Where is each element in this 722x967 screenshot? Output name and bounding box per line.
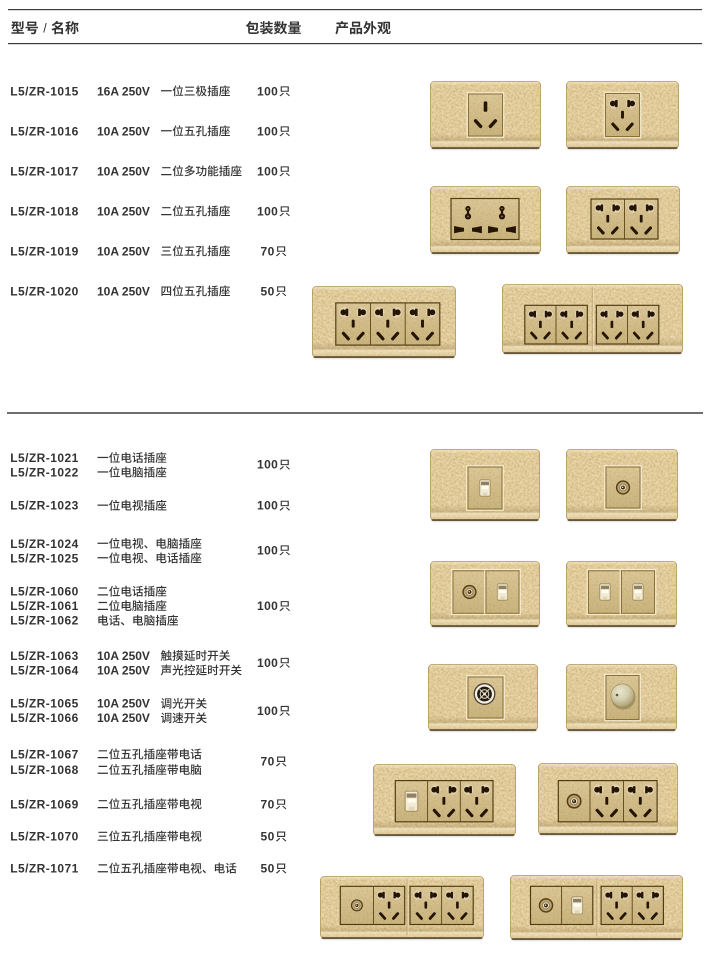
svg-text:L5/ZR-1060: L5/ZR-1060 xyxy=(10,585,79,599)
svg-text:L5/ZR-1025: L5/ZR-1025 xyxy=(10,551,79,565)
svg-text:L5/ZR-1020: L5/ZR-1020 xyxy=(10,284,79,298)
svg-text:L5/ZR-1064: L5/ZR-1064 xyxy=(10,663,79,677)
svg-text:100: 100 xyxy=(257,543,278,557)
svg-text:10A 250V: 10A 250V xyxy=(97,284,150,298)
svg-text:L5/ZR-1065: L5/ZR-1065 xyxy=(10,697,79,711)
svg-text:L5/ZR-1015: L5/ZR-1015 xyxy=(10,84,79,98)
svg-text:70: 70 xyxy=(261,797,275,811)
svg-text:10A 250V: 10A 250V xyxy=(97,649,150,663)
svg-text:100: 100 xyxy=(257,204,278,218)
svg-text:10A 250V: 10A 250V xyxy=(97,204,150,218)
svg-text:10A 250V: 10A 250V xyxy=(97,711,150,725)
svg-text:L5/ZR-1067: L5/ZR-1067 xyxy=(10,747,79,761)
svg-text:100: 100 xyxy=(257,704,278,718)
svg-text:L5/ZR-1068: L5/ZR-1068 xyxy=(10,763,79,777)
svg-text:10A 250V: 10A 250V xyxy=(97,697,150,711)
svg-text:10A 250V: 10A 250V xyxy=(97,164,150,178)
svg-text:100: 100 xyxy=(257,84,278,98)
svg-text:L5/ZR-1063: L5/ZR-1063 xyxy=(10,649,79,663)
svg-text:100: 100 xyxy=(257,499,278,513)
svg-text:L5/ZR-1017: L5/ZR-1017 xyxy=(10,164,79,178)
svg-text:L5/ZR-1070: L5/ZR-1070 xyxy=(10,830,79,844)
svg-text:L5/ZR-1024: L5/ZR-1024 xyxy=(10,537,79,551)
svg-text:L5/ZR-1061: L5/ZR-1061 xyxy=(10,599,79,613)
svg-text:L5/ZR-1019: L5/ZR-1019 xyxy=(10,244,79,258)
svg-text:50: 50 xyxy=(261,830,275,844)
svg-text:L5/ZR-1016: L5/ZR-1016 xyxy=(10,124,79,138)
svg-text:L5/ZR-1066: L5/ZR-1066 xyxy=(10,711,79,725)
svg-text:/: / xyxy=(43,21,47,35)
svg-text:50: 50 xyxy=(261,284,275,298)
svg-text:100: 100 xyxy=(257,599,278,613)
svg-text:70: 70 xyxy=(261,755,275,769)
svg-text:10A 250V: 10A 250V xyxy=(97,244,150,258)
svg-text:L5/ZR-1069: L5/ZR-1069 xyxy=(10,797,79,811)
svg-text:L5/ZR-1022: L5/ZR-1022 xyxy=(10,466,79,480)
svg-text:50: 50 xyxy=(261,862,275,876)
svg-text:16A 250V: 16A 250V xyxy=(97,84,150,98)
svg-text:100: 100 xyxy=(257,458,278,472)
svg-text:L5/ZR-1021: L5/ZR-1021 xyxy=(10,451,79,465)
svg-text:10A 250V: 10A 250V xyxy=(97,663,150,677)
svg-text:100: 100 xyxy=(257,164,278,178)
svg-text:L5/ZR-1023: L5/ZR-1023 xyxy=(10,499,79,513)
svg-text:L5/ZR-1018: L5/ZR-1018 xyxy=(10,204,79,218)
svg-text:100: 100 xyxy=(257,124,278,138)
svg-text:L5/ZR-1062: L5/ZR-1062 xyxy=(10,614,79,628)
svg-text:70: 70 xyxy=(261,244,275,258)
svg-text:100: 100 xyxy=(257,656,278,670)
svg-text:L5/ZR-1071: L5/ZR-1071 xyxy=(10,862,79,876)
svg-text:10A 250V: 10A 250V xyxy=(97,124,150,138)
